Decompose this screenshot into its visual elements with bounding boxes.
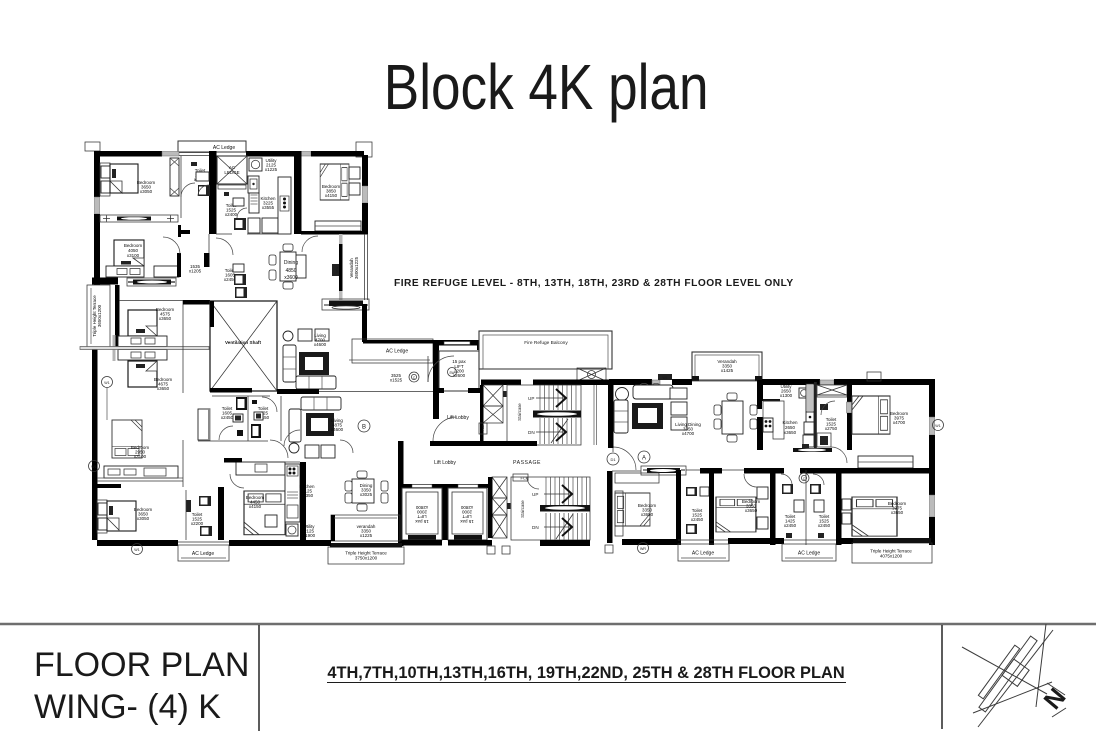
svg-text:x2200: x2200	[191, 521, 204, 526]
svg-text:FIRE REFUGE LEVEL - 8TH, 13TH,: FIRE REFUGE LEVEL - 8TH, 13TH, 18TH, 23R…	[394, 278, 794, 289]
svg-text:Staircase: Staircase	[520, 500, 525, 518]
svg-text:3650x1200: 3650x1200	[97, 304, 102, 327]
svg-text:Block 4K plan: Block 4K plan	[384, 52, 709, 123]
svg-text:UP: UP	[528, 396, 534, 401]
svg-text:x4600: x4600	[331, 427, 344, 432]
svg-text:x3650: x3650	[745, 508, 758, 513]
svg-text:x3050: x3050	[140, 189, 153, 194]
svg-text:STU: STU	[335, 267, 339, 273]
svg-text:W1: W1	[134, 548, 139, 552]
svg-text:x1525: x1525	[390, 378, 403, 383]
svg-text:PASSAGE: PASSAGE	[513, 460, 541, 466]
svg-text:FLOOR PLAN: FLOOR PLAN	[34, 646, 249, 684]
svg-text:Staircase: Staircase	[517, 403, 522, 421]
svg-text:A: A	[642, 456, 646, 462]
svg-text:x2750: x2750	[825, 426, 838, 431]
svg-text:x3650: x3650	[891, 510, 904, 515]
svg-text:x2400: x2400	[225, 212, 238, 217]
svg-text:3750x1200: 3750x1200	[355, 556, 378, 561]
svg-text:x4600: x4600	[314, 342, 327, 347]
svg-text:UP: UP	[532, 492, 538, 497]
svg-text:x2800: x2800	[460, 505, 473, 510]
svg-text:x4700: x4700	[893, 420, 906, 425]
svg-text:DN: DN	[532, 525, 539, 530]
svg-text:4075x1200: 4075x1200	[880, 554, 903, 559]
svg-text:x1225: x1225	[265, 167, 278, 172]
svg-text:x1425: x1425	[721, 368, 734, 373]
svg-text:Fire Refuge Balcony: Fire Refuge Balcony	[524, 340, 568, 346]
svg-text:x2800: x2800	[415, 505, 428, 510]
svg-text:Ventilation Shaft: Ventilation Shaft	[225, 340, 261, 345]
svg-text:x4150: x4150	[325, 193, 338, 198]
svg-text:x3050: x3050	[137, 516, 150, 521]
svg-text:Dining: Dining	[284, 260, 298, 266]
svg-text:x3100: x3100	[134, 454, 147, 459]
svg-text:AC Ledge: AC Ledge	[692, 551, 714, 557]
svg-text:x2450: x2450	[221, 415, 234, 420]
svg-text:D1: D1	[610, 457, 616, 462]
svg-text:4TH,7TH,10TH,13TH,16TH, 19TH,2: 4TH,7TH,10TH,13TH,16TH, 19TH,22ND, 25TH …	[327, 664, 844, 682]
svg-text:3600x1225: 3600x1225	[354, 256, 359, 279]
svg-text:W1: W1	[935, 424, 940, 428]
svg-text:x1205: x1205	[189, 269, 202, 274]
svg-text:x4700: x4700	[682, 431, 695, 436]
svg-text:AC Ledge: AC Ledge	[798, 551, 820, 557]
svg-text:AC Ledge: AC Ledge	[213, 145, 235, 151]
svg-text:x2450: x2450	[691, 517, 704, 522]
svg-text:AC Ledge: AC Ledge	[192, 551, 214, 557]
svg-text:Lift Lobby: Lift Lobby	[434, 460, 456, 466]
svg-text:x2450: x2450	[784, 523, 797, 528]
svg-text:x3650: x3650	[641, 512, 654, 517]
svg-text:DN: DN	[528, 430, 535, 435]
svg-text:x2450: x2450	[818, 523, 831, 528]
svg-text:W1: W1	[662, 376, 667, 380]
svg-text:x1300: x1300	[780, 393, 793, 398]
svg-text:4850: 4850	[285, 268, 296, 274]
svg-text:x3100: x3100	[127, 253, 140, 258]
svg-text:FCB: FCB	[481, 425, 485, 431]
svg-text:SW: SW	[449, 371, 454, 375]
svg-text:W1: W1	[91, 465, 96, 469]
svg-text:x3650: x3650	[159, 316, 172, 321]
svg-text:x3025: x3025	[360, 492, 373, 497]
svg-text:x3600: x3600	[284, 275, 298, 281]
svg-text:x4150: x4150	[249, 504, 262, 509]
svg-text:WING- (4) K: WING- (4) K	[34, 688, 221, 726]
svg-text:x3650: x3650	[784, 430, 797, 435]
svg-text:AC Ledge: AC Ledge	[386, 349, 408, 355]
svg-text:W1: W1	[104, 381, 109, 385]
svg-text:WR: WR	[640, 547, 646, 551]
svg-text:x1225: x1225	[360, 533, 373, 538]
svg-text:x3555: x3555	[262, 205, 275, 210]
svg-text:LEDGE: LEDGE	[224, 170, 239, 175]
svg-text:x3650: x3650	[157, 386, 170, 391]
svg-text:B: B	[362, 425, 366, 431]
